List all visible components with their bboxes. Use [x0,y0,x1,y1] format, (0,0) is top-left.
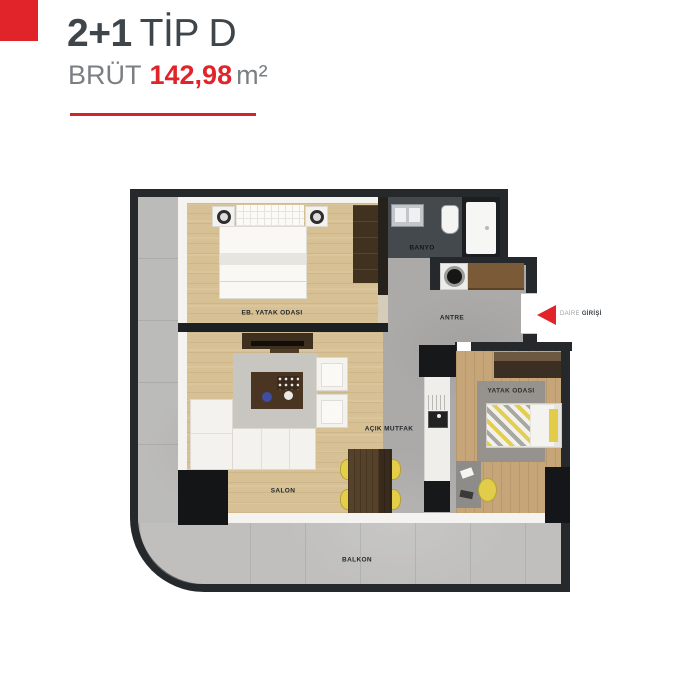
sink-basin [409,208,420,222]
apartment-entry-door-opening [521,293,537,334]
coffee-table [251,372,303,409]
unit-title: 2+1TİP D [67,12,236,56]
tile-joint [415,523,416,584]
exterior-notch [508,183,583,257]
white-plate [284,391,293,400]
tile-joint [470,523,471,584]
label-bathroom: BANYO [409,245,434,252]
wall-segment [526,257,537,293]
label-living-room: SALON [271,488,296,495]
cushion-seam [191,433,232,434]
armchair [316,357,348,391]
shower-drain [485,226,489,230]
floor-plan-page: 2+1TİP D BRÜT142,98m² [0,0,700,700]
label-open-kitchen: AÇIK MUTFAK [365,426,414,433]
blue-plate [262,392,272,402]
wall-segment [430,265,440,290]
shower-tray [466,202,496,254]
washing-machine [440,263,468,290]
master-bed [219,226,307,299]
wall-segment [130,189,508,197]
kitchen-counter [424,377,450,481]
master-bedroom-door-opening [378,295,388,323]
label-master-bedroom: EB. YATAK ODASI [242,310,303,317]
yellow-pillow [549,409,558,442]
cushion-seam [261,429,262,469]
tile-joint [138,382,178,383]
area-label: BRÜT [68,60,142,90]
cushion-seam [289,429,290,469]
lamp-icon [310,210,324,224]
faucet-icon [437,414,441,418]
window-band-bottom [178,513,562,523]
washer-drum-icon [444,266,465,287]
armchair-cushion [321,400,343,424]
gross-area: BRÜT142,98m² [68,60,268,90]
wall-column [178,470,228,525]
exterior-notch [537,257,583,342]
tile-joint [138,258,178,259]
sink-basin [395,208,406,222]
lamp-icon [217,210,231,224]
dining-table [348,449,392,513]
balcony-floor [140,523,562,584]
armchair-cushion [321,363,343,387]
dish-rack [428,395,448,410]
desk [456,461,481,508]
desk-laptop [459,490,473,500]
tv-unit [242,333,313,349]
label-entry-hall: ANTRE [440,315,464,322]
unit-type: 2+1 [67,12,132,55]
kitchen-cabinet-bottom [424,481,450,512]
chevron-blanket [487,405,530,446]
master-wardrobe [353,205,378,283]
bed-headboard [236,205,304,226]
nightstand-right [305,206,328,227]
tile-joint [305,523,306,584]
bed-blanket [220,253,306,265]
table-tray [277,376,299,390]
bed-fold-line [220,281,306,282]
label-bedroom: YATAK ODASI [487,388,534,395]
toilet [441,205,459,234]
tile-joint [138,444,178,445]
tile-joint [250,523,251,584]
accent-divider-line [70,113,256,116]
side-balcony-strip [138,197,178,523]
tv-screen [251,341,304,346]
bedroom-wardrobe [494,352,561,378]
wall-segment [455,342,572,351]
desk-paper [460,467,474,479]
kitchen-sink [428,411,448,428]
sofa-chaise [190,399,233,470]
armchair [316,394,348,428]
brand-logo-square [0,0,38,41]
entrance-arrow-icon [537,305,556,325]
tile-joint [360,523,361,584]
kitchen-cabinet-top [419,345,456,377]
single-bed [486,403,562,448]
area-value: 142,98 [150,60,233,90]
hall-cabinet [468,263,524,290]
tile-joint [138,320,178,321]
nightstand-left [212,206,235,227]
wall-segment [500,189,508,257]
entrance-label-light: DAİRE [560,311,580,317]
label-balcony: BALKON [342,557,372,564]
unit-plan-name: TİP D [140,12,236,55]
wall-segment [178,323,388,332]
tile-joint [525,523,526,584]
wall-column [545,467,570,523]
bathroom-vanity-sink [391,204,424,227]
shower-enclosure [462,197,500,258]
entrance-label: DAİRE GİRİŞİ [560,311,602,317]
area-unit: m² [236,60,267,90]
entrance-label-bold: GİRİŞİ [582,311,602,317]
sofa-main [232,428,316,470]
bedroom-door-opening [457,342,471,351]
desk-chair [478,478,497,502]
